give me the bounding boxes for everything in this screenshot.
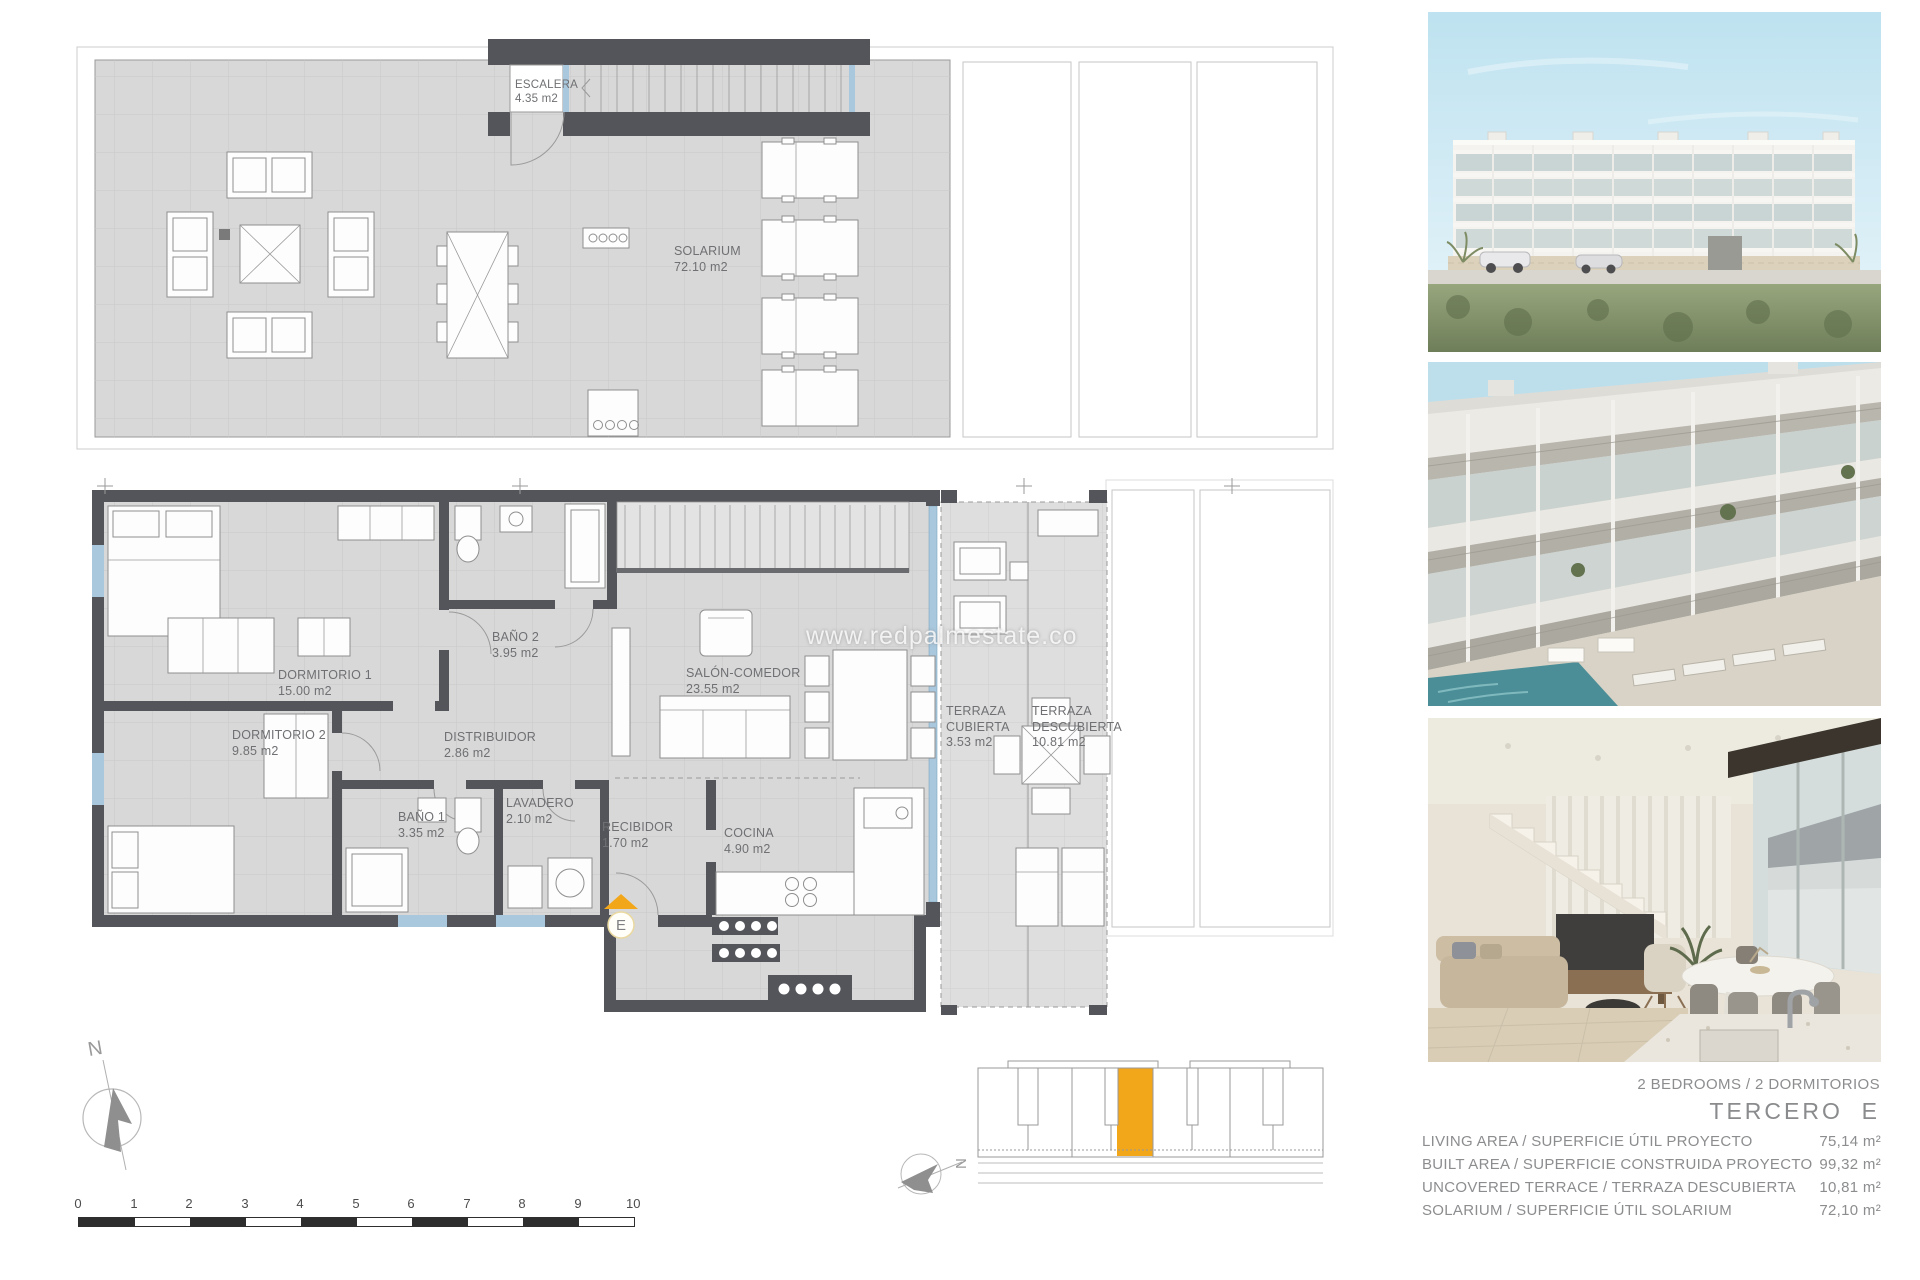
scale-tick: 6 <box>404 1196 418 1211</box>
room-label-bano-1: BAÑO 1 3.35 m2 <box>398 810 445 841</box>
escalera-label: ESCALERA 4.35 m2 <box>515 78 578 106</box>
summary-row-label: SOLARIUM / SUPERFICIE ÚTIL SOLARIUM <box>1422 1202 1732 1219</box>
scale-tick: 3 <box>238 1196 252 1211</box>
scale-tick: 4 <box>293 1196 307 1211</box>
plan-sheet: ESCALERA 4.35 m2 SOLARIUM 72.10 m2 <box>0 0 1920 1280</box>
window <box>92 545 104 597</box>
key-plan-building <box>978 1061 1323 1183</box>
summary-row-value: 10,81 m² <box>1819 1179 1881 1196</box>
solarium-label: SOLARIUM 72.10 m2 <box>674 243 741 275</box>
scale-tick: 5 <box>349 1196 363 1211</box>
scale-tick: 10 <box>626 1196 640 1211</box>
photo-building-exterior <box>1428 12 1881 352</box>
window <box>398 915 447 927</box>
window <box>92 753 104 805</box>
bedrooms-line: 2 BEDROOMS / 2 DORMITORIOS <box>1637 1076 1880 1093</box>
internal-stairs <box>617 502 909 573</box>
key-plan <box>890 1030 1340 1200</box>
room-label-salon-comedor: SALÓN-COMEDOR 23.55 m2 <box>686 666 800 697</box>
scale-tick: 2 <box>182 1196 196 1211</box>
room-label-terraza-descubierta: TERRAZA DESCUBIERTA 10.81 m2 <box>1032 704 1094 751</box>
summary-row-value: 99,32 m² <box>1819 1156 1881 1173</box>
room-label-distribuidor: DISTRIBUIDOR 2.86 m2 <box>444 730 536 761</box>
photo-building-terraces <box>1428 362 1881 706</box>
watermark: www.redpalmestate.co <box>806 622 1106 651</box>
room-label-dormitorio-2: DORMITORIO 2 9.85 m2 <box>232 728 326 759</box>
neighbour-unit-outline-2 <box>1200 490 1330 927</box>
room-label-cocina: COCINA 4.90 m2 <box>724 826 774 857</box>
neighbour-unit-outline <box>1112 490 1194 927</box>
room-label-bano-2: BAÑO 2 3.95 m2 <box>492 630 539 661</box>
building <box>1453 132 1855 256</box>
room-label-lavadero: LAVADERO 2.10 m2 <box>506 796 574 827</box>
armchair <box>1644 944 1686 1010</box>
summary-row-value: 75,14 m² <box>1819 1133 1881 1150</box>
north-compass <box>83 1060 141 1170</box>
room-label-recibidor: RECIBIDOR 1.70 m2 <box>602 820 673 851</box>
scale-bar <box>78 1217 635 1227</box>
unit-title: TERCERO E <box>1709 1098 1880 1125</box>
scale-tick: 8 <box>515 1196 529 1211</box>
scale-tick: 0 <box>71 1196 85 1211</box>
summary-row-label: LIVING AREA / SUPERFICIE ÚTIL PROYECTO <box>1422 1133 1753 1150</box>
scale-tick: 9 <box>571 1196 585 1211</box>
window <box>496 915 545 927</box>
photo-interior-living <box>1428 718 1881 1062</box>
summary-row-label: BUILT AREA / SUPERFICIE CONSTRUIDA PROYE… <box>1422 1156 1813 1173</box>
scale-tick: 7 <box>460 1196 474 1211</box>
summary-row-label: UNCOVERED TERRACE / TERRAZA DESCUBIERTA <box>1422 1179 1796 1196</box>
summary-row-value: 72,10 m² <box>1819 1202 1881 1219</box>
scale-tick: 1 <box>127 1196 141 1211</box>
key-plan-north-label: N <box>952 1158 969 1169</box>
room-label-dormitorio-1: DORMITORIO 1 15.00 m2 <box>278 668 372 699</box>
entrance-letter: E <box>608 917 634 934</box>
room-label-terraza-cubierta: TERRAZA CUBIERTA 3.53 m2 <box>946 704 1008 751</box>
